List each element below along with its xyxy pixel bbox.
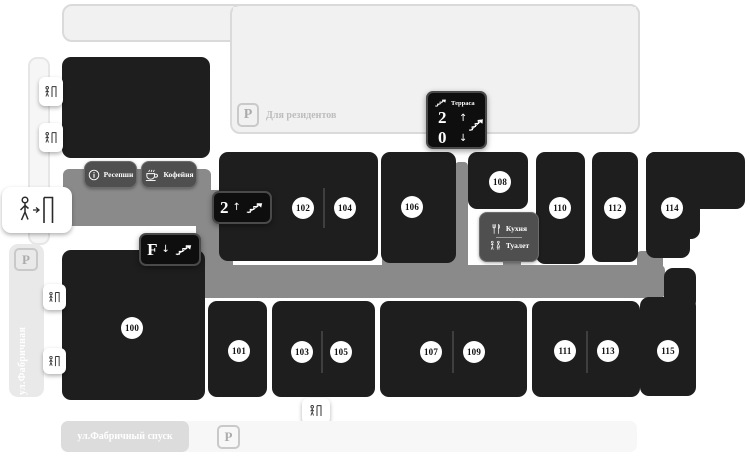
- room-badge-104[interactable]: 104: [334, 197, 356, 219]
- stairs-icon: [466, 116, 486, 134]
- parking-letter: P: [22, 252, 30, 268]
- terrace-down-arrow: ↓: [459, 134, 467, 144]
- room-number: 112: [608, 203, 622, 213]
- residents-area-joint: [233, 7, 636, 43]
- down-arrow: ↓: [162, 245, 170, 255]
- parking-letter: P: [225, 429, 233, 445]
- door-icon-box: [39, 77, 63, 106]
- info-icon: [88, 169, 100, 181]
- main-entrance[interactable]: [2, 187, 72, 233]
- coffee-icon: [144, 168, 159, 182]
- coffee-text: Кофейня: [163, 170, 193, 179]
- corridor-stub-106: [455, 162, 468, 272]
- reception-text: Ресепшн: [104, 170, 134, 179]
- parking-icon-left: P: [14, 248, 38, 271]
- kitchen-icon: [491, 223, 502, 235]
- stairs-badge-floor2[interactable]: 2 ↑: [212, 191, 272, 224]
- room-badge-102[interactable]: 102: [292, 197, 314, 219]
- room-badge-113[interactable]: 113: [597, 340, 619, 362]
- terrace-badge[interactable]: Терраса 2 ↑ 0 ↓: [426, 91, 487, 149]
- divider-103-105: [321, 331, 323, 373]
- street-label-left: ул.Фабричная: [17, 277, 28, 395]
- room-badge-111[interactable]: 111: [554, 340, 576, 362]
- room-number: 107: [424, 347, 438, 357]
- divider-107-109: [452, 331, 454, 373]
- room-badge-105[interactable]: 105: [330, 341, 352, 363]
- room-badge-106[interactable]: 106: [401, 196, 423, 218]
- door-icon: [44, 131, 58, 145]
- door-icon-box: [43, 284, 66, 310]
- room-number: 101: [232, 346, 246, 356]
- kitchen-text: Кухня: [506, 224, 527, 233]
- residents-label: Для резидентов: [266, 110, 336, 121]
- reception-label[interactable]: Ресепшн: [84, 161, 137, 188]
- street-label-bottom-box: ул.Фабричный спуск: [61, 421, 189, 452]
- room-badge-101[interactable]: 101: [228, 340, 250, 362]
- room-number: 111: [558, 346, 571, 356]
- divider-111-113: [586, 331, 588, 373]
- floor-number: 2: [220, 199, 229, 216]
- room-number: 106: [405, 202, 419, 212]
- room-number: 108: [493, 177, 507, 187]
- room-number: 100: [125, 323, 139, 333]
- room-block-103-105[interactable]: [272, 301, 375, 397]
- room-badge-103[interactable]: 103: [291, 341, 313, 363]
- door-icon: [48, 291, 61, 304]
- stairs-icon: [245, 201, 264, 215]
- room-badge-108[interactable]: 108: [489, 171, 511, 193]
- entrance-icon: [14, 194, 60, 226]
- room-number: 109: [467, 347, 481, 357]
- toilet-icon: [489, 240, 502, 252]
- door-icon: [44, 85, 58, 99]
- terrace-up-floor: 2: [438, 109, 447, 126]
- room-badge-110[interactable]: 110: [549, 197, 571, 219]
- room-badge-115[interactable]: 115: [657, 340, 679, 362]
- room-number: 114: [665, 203, 679, 213]
- parking-icon-bottom: P: [217, 425, 240, 449]
- terrace-text: Терраса: [451, 100, 475, 107]
- room-number: 115: [661, 346, 675, 356]
- room-badge-112[interactable]: 112: [604, 197, 626, 219]
- toilet-text: Туалет: [506, 241, 529, 250]
- room-number: 105: [334, 347, 348, 357]
- room-badge-114[interactable]: 114: [661, 197, 683, 219]
- parking-icon-residents: P: [237, 103, 259, 127]
- floor-plan: P Для резидентов P ул.Фабричная 100 101 …: [0, 0, 750, 458]
- up-arrow: ↑: [233, 203, 241, 213]
- door-icon: [48, 355, 61, 368]
- room-number: 103: [295, 347, 309, 357]
- floor-letter: F: [147, 241, 157, 258]
- room-number: 102: [296, 203, 310, 213]
- label-divider: [496, 237, 522, 238]
- door-icon: [309, 404, 323, 418]
- room-badge-100[interactable]: 100: [121, 317, 143, 339]
- stairs-icon: [434, 98, 447, 108]
- room-badge-107[interactable]: 107: [420, 341, 442, 363]
- room-block-service[interactable]: [62, 57, 210, 158]
- door-icon-box: [43, 348, 66, 374]
- parking-letter: P: [244, 107, 253, 123]
- kitchen-toilet-label[interactable]: Кухня Туалет: [479, 212, 539, 262]
- terrace-down-floor: 0: [438, 129, 447, 146]
- room-number: 110: [553, 203, 567, 213]
- stairs-icon: [174, 243, 193, 257]
- coffee-label[interactable]: Кофейня: [141, 161, 197, 188]
- room-number: 104: [338, 203, 352, 213]
- divider-102-104: [323, 188, 325, 228]
- door-icon-box: [39, 123, 63, 152]
- stairs-badge-floorF[interactable]: F ↓: [139, 233, 201, 266]
- room-number: 113: [601, 346, 615, 356]
- street-label-bottom: ул.Фабричный спуск: [77, 431, 172, 442]
- room-badge-109[interactable]: 109: [463, 341, 485, 363]
